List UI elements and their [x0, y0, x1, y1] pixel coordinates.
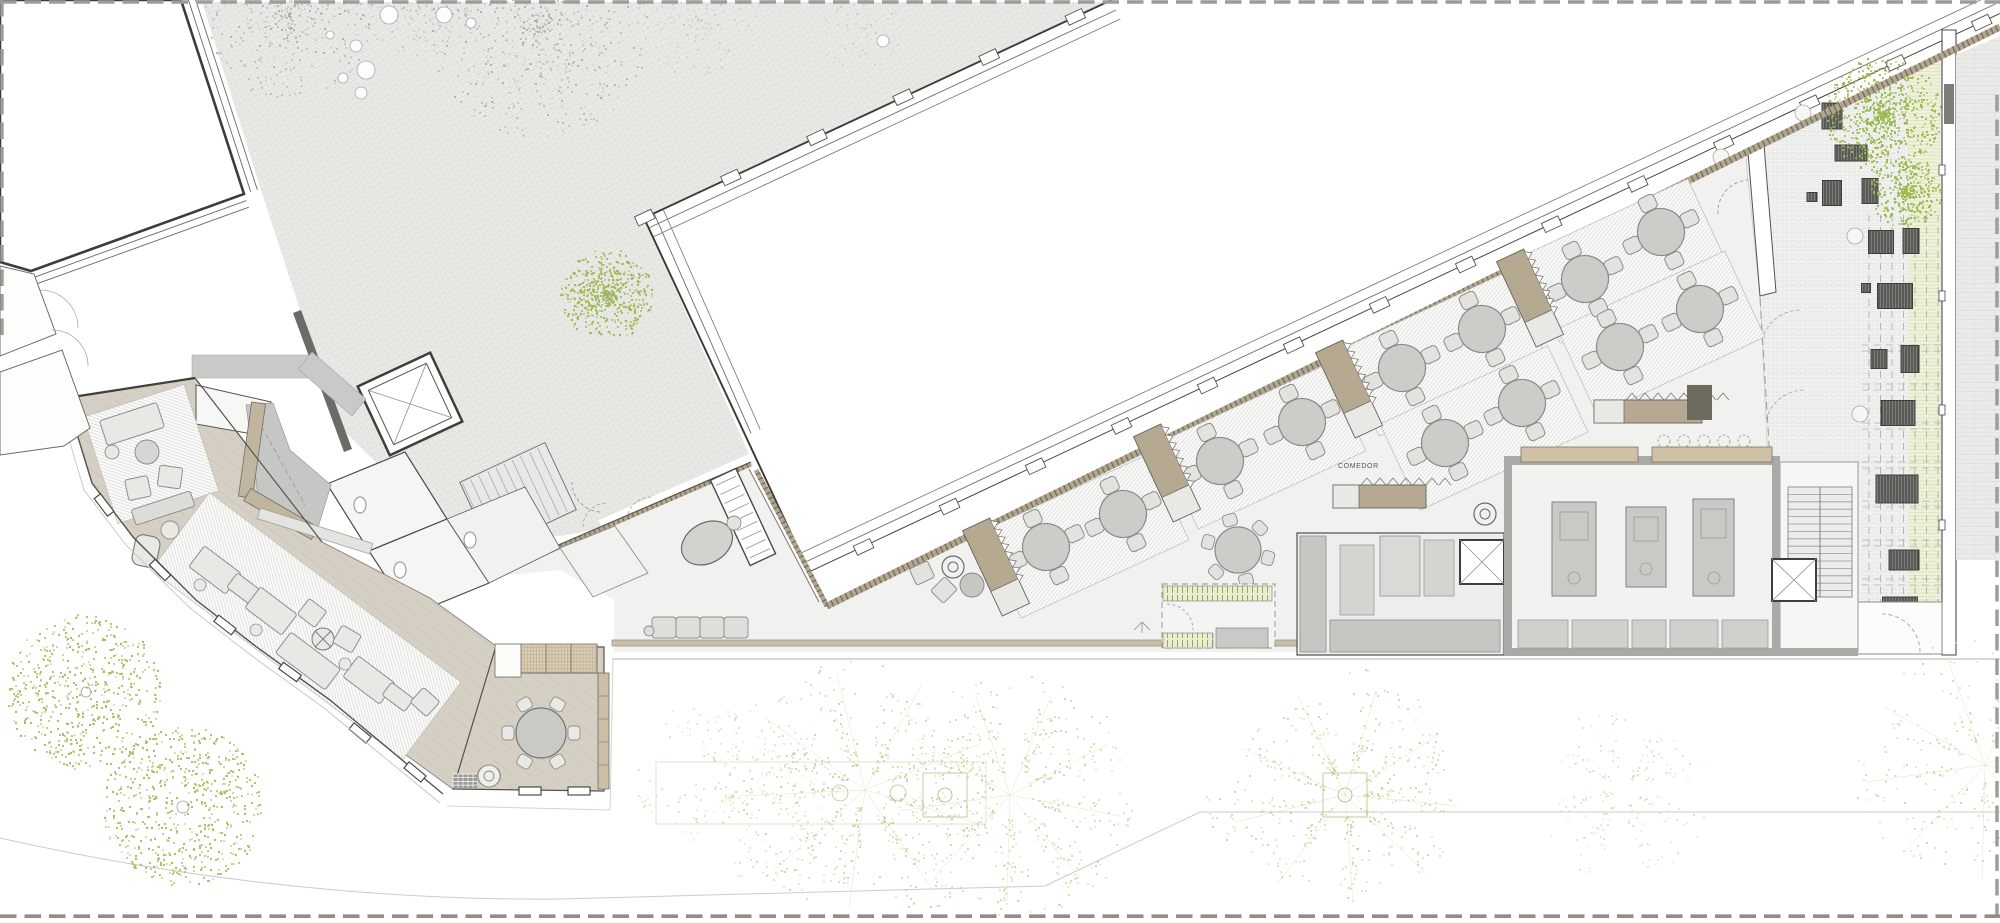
- svg-text:COMEDOR: COMEDOR: [1338, 463, 1379, 470]
